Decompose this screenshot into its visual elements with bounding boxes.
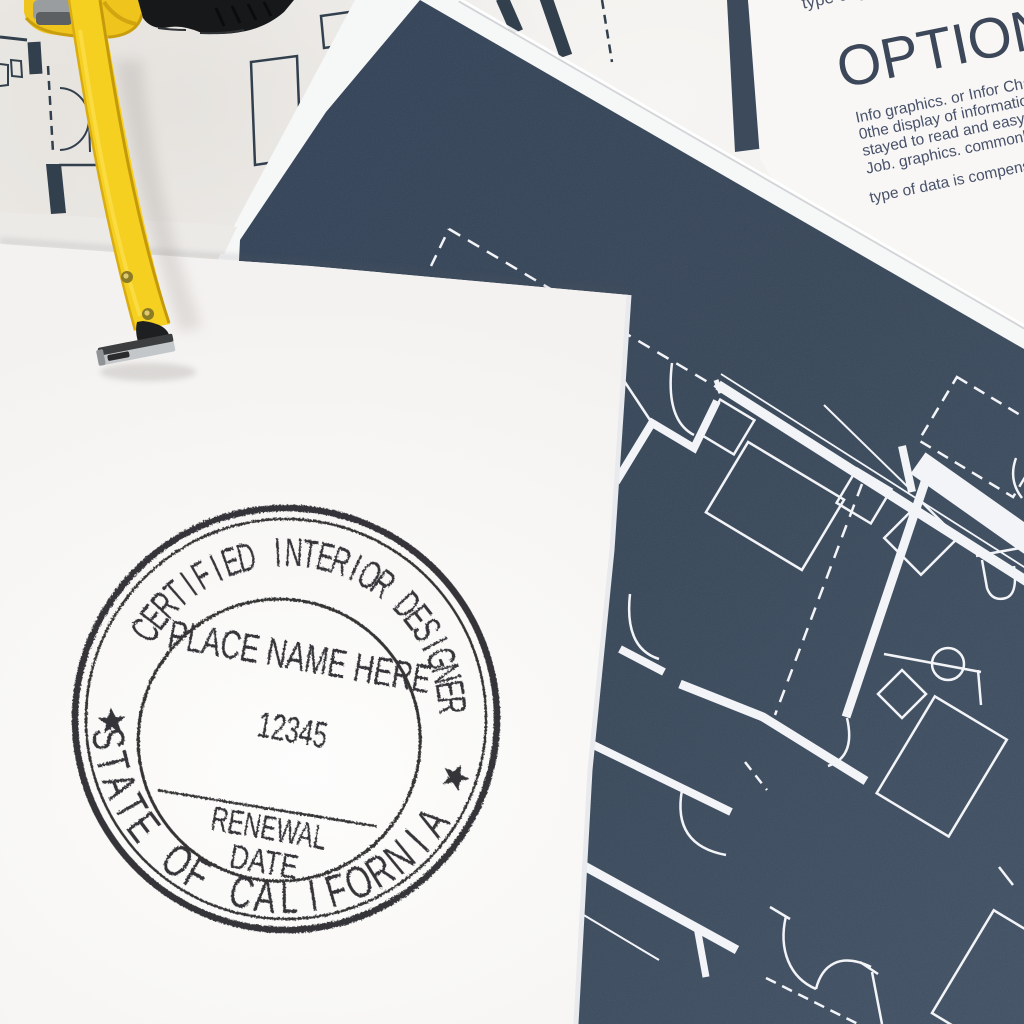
svg-text:12345: 12345 xyxy=(255,704,331,756)
svg-text:I: I xyxy=(273,531,282,576)
svg-text:I: I xyxy=(305,872,321,922)
svg-text:R: R xyxy=(428,694,474,716)
svg-text:PLACE NAME HERE: PLACE NAME HERE xyxy=(165,613,435,703)
